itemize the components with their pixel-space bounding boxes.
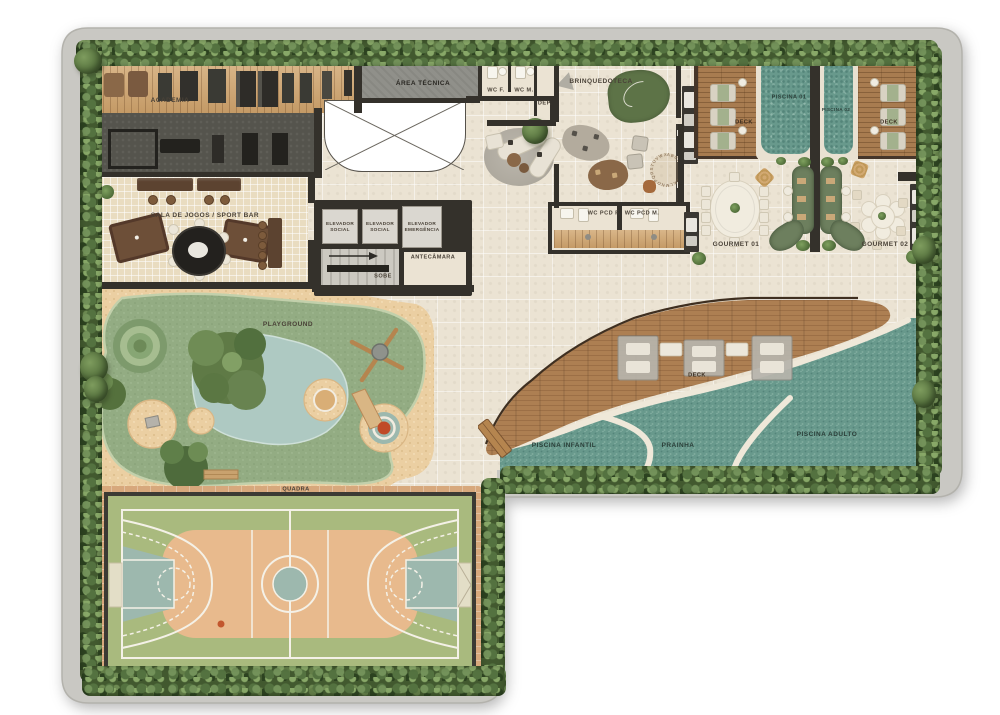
side-table: [783, 212, 793, 222]
spiral-feature: [113, 319, 167, 373]
sand-circle-ring: [304, 379, 346, 421]
toilet: [515, 66, 526, 79]
side-table: [783, 186, 793, 196]
pool-01-water: [761, 64, 811, 154]
deck-rail: [858, 156, 916, 159]
void-hatch: [324, 100, 466, 172]
deck-lounger: [726, 343, 748, 356]
sofa-tray: [797, 214, 806, 220]
wall: [694, 62, 698, 158]
label-piscina-adulto: PISCINA ADULTO: [797, 431, 857, 439]
cabana: [684, 340, 724, 376]
game-table: [172, 226, 226, 276]
hedge-court-right: [481, 478, 505, 684]
label-piscina-02: PISCINA 02: [822, 107, 850, 113]
void-cross-lines: [325, 101, 464, 170]
side-table: [841, 186, 851, 196]
goal-left: [109, 563, 122, 607]
wall: [554, 164, 559, 208]
label-elevador-emergencia: ELEVADOR EMERGÊNCIA: [402, 221, 442, 233]
wall: [308, 240, 315, 288]
label-deck-3: DECK: [688, 372, 706, 379]
sofa-cushion: [508, 140, 513, 145]
hedge-pool-bottom: [500, 466, 940, 494]
wall: [314, 108, 322, 178]
wc-pcd-wood-floor: [554, 230, 684, 248]
wall: [96, 282, 314, 289]
bar-counter: [197, 178, 241, 191]
gym-machine: [272, 133, 288, 165]
side-table: [870, 126, 879, 135]
wall: [312, 285, 474, 292]
label-gourmet-01: GOURMET 01: [713, 241, 760, 249]
cabana: [618, 336, 658, 380]
sofa-tray: [826, 196, 835, 202]
label-brinquedoteca: BRINQUEDOTECA: [569, 78, 632, 86]
label-gourmet-02: GOURMET 02: [862, 241, 909, 249]
label-deck-1: DECK: [735, 119, 753, 126]
wall: [487, 120, 553, 126]
sofa-cushion: [537, 152, 542, 157]
side-table: [738, 78, 747, 87]
wall: [678, 124, 684, 206]
cabana: [752, 336, 792, 380]
gym-machine: [104, 73, 124, 97]
tree: [912, 236, 936, 264]
gym-locker: [344, 70, 352, 96]
sofa-tray: [826, 178, 835, 184]
court-markings: [108, 496, 472, 672]
pool-01-border: [756, 60, 816, 160]
treadmill: [236, 71, 256, 107]
elevator-core: [314, 200, 472, 296]
amenities-floor-plan: ABCDEFGHIJKLMNOPQRSTUVWXYZ: [0, 0, 1000, 715]
bench: [204, 470, 238, 479]
wall: [354, 63, 362, 113]
gym-machine: [208, 69, 226, 103]
shower-drain: [651, 234, 657, 240]
gym-wood-floor: [96, 63, 354, 113]
deck-1: [698, 62, 758, 158]
sand-circle-small: [188, 408, 214, 434]
tree: [74, 48, 102, 74]
label-wc-pcd-m: WC PCD M.: [625, 210, 660, 217]
playground-zone: [94, 278, 486, 504]
kitchen-counter: [684, 212, 699, 252]
label-sala-de-jogos: SALA DE JOGOS / SPORT BAR: [151, 212, 259, 220]
treadmill: [258, 71, 278, 107]
basketball: [218, 621, 225, 628]
bar-counter: [137, 178, 193, 191]
shower-drain: [585, 234, 591, 240]
gourmet-01-table: [710, 180, 760, 238]
side-table: [841, 212, 851, 222]
wall: [96, 172, 316, 177]
label-wc-pcd-f: WC PCD F.: [588, 210, 621, 217]
gym-machine: [242, 133, 258, 165]
exercise-bike: [282, 73, 294, 103]
tree: [84, 376, 108, 402]
wall: [308, 177, 315, 203]
deck-rail: [698, 156, 758, 159]
label-deck-2: DECK: [880, 119, 898, 126]
wall: [362, 98, 480, 103]
stairs-up-arrow: [325, 250, 381, 262]
gym-rubber-floor: [96, 113, 314, 175]
label-antecamara: ANTECÂMARA: [411, 254, 456, 261]
deck-2: [858, 62, 916, 158]
label-elevador-social-2: ELEVADOR SOCIAL: [363, 221, 397, 233]
high-counter: [268, 218, 282, 268]
goal-right: [458, 563, 471, 607]
wall: [554, 63, 559, 122]
deck-lounger: [660, 343, 682, 356]
sink: [498, 67, 507, 76]
sink: [560, 208, 574, 219]
gym-machine: [128, 71, 148, 97]
label-area-tecnica: ÁREA TÉCNICA: [396, 80, 450, 88]
coffee-table: [519, 163, 529, 173]
barbell-rack: [160, 139, 200, 153]
label-sobe: SOBE: [374, 273, 392, 280]
room-sport-bar: [96, 177, 308, 282]
side-table: [870, 78, 879, 87]
side-table: [738, 126, 747, 135]
court-frame: [104, 492, 476, 676]
exercise-bike: [300, 73, 312, 103]
hedge-bottom: [82, 666, 506, 696]
toilet: [487, 66, 498, 79]
label-prainha: PRAINHA: [662, 442, 695, 450]
label-elevador-social-1: ELEVADOR SOCIAL: [323, 221, 357, 233]
sofa-tray: [797, 196, 806, 202]
label-academia: ACADEMIA: [151, 97, 190, 105]
label-quadra: QUADRA: [282, 486, 309, 493]
label-dep: DEP.: [538, 100, 552, 107]
label-piscina-01: PISCINA 01: [772, 94, 807, 101]
sofa-tray: [797, 178, 806, 184]
sofa-tray: [826, 214, 835, 220]
label-piscina-infantil: PISCINA INFANTIL: [532, 442, 596, 450]
armchair: [626, 153, 643, 170]
cable-station: [108, 129, 158, 169]
label-wc-m: WC M.: [514, 87, 533, 94]
gym-machine: [322, 71, 332, 99]
weight-bench: [212, 135, 224, 163]
label-playground: PLAYGROUND: [263, 321, 313, 329]
tree: [912, 380, 936, 408]
wall: [676, 62, 681, 118]
label-wc-f: WC F.: [487, 87, 504, 94]
hedge-top: [76, 40, 938, 66]
